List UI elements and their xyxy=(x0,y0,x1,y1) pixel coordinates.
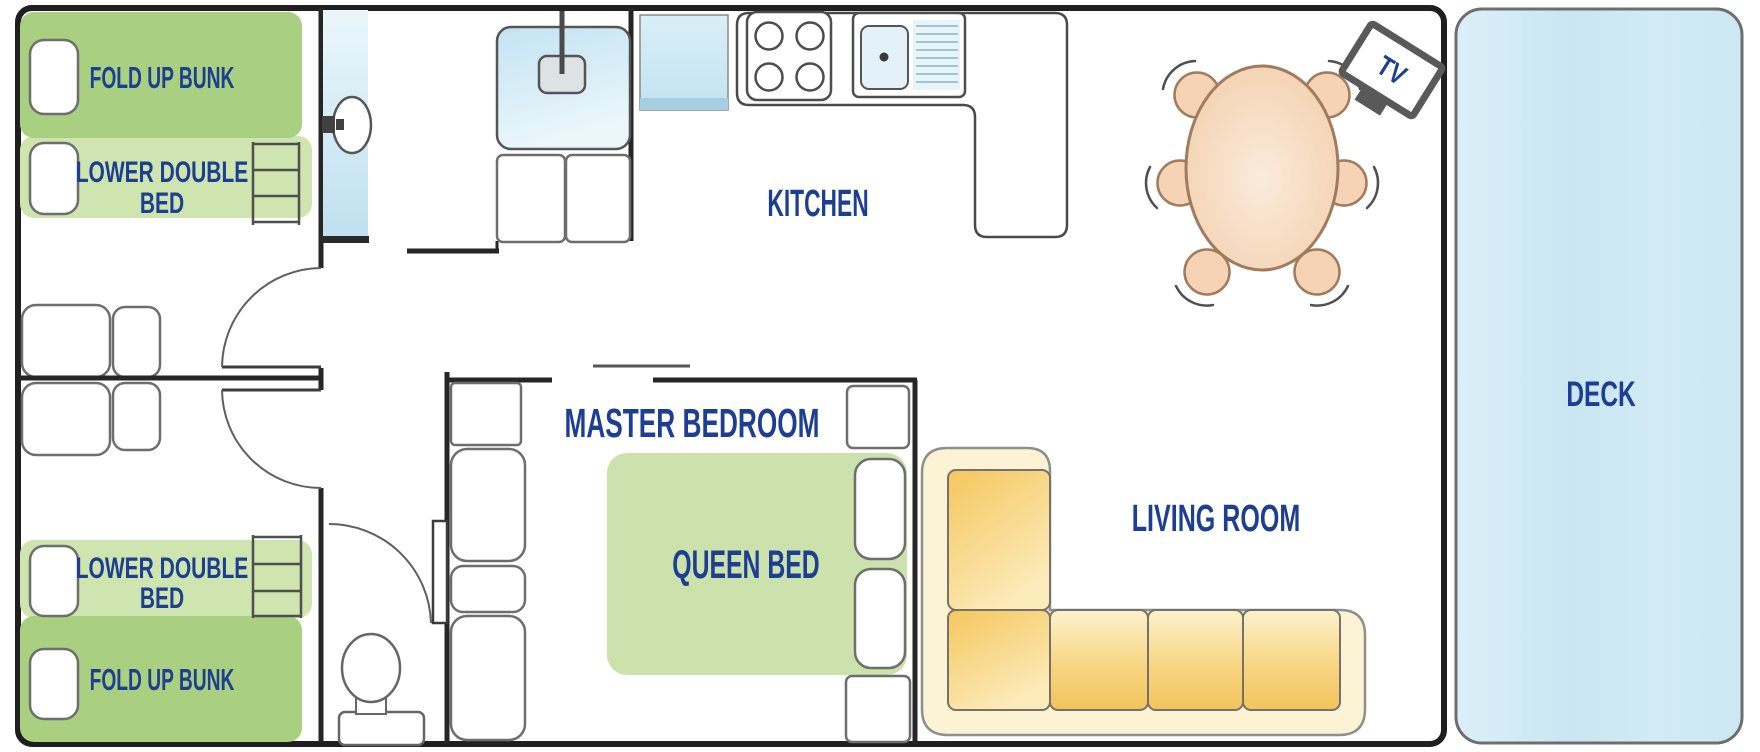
stove-icon xyxy=(747,12,831,100)
burner-circle xyxy=(756,64,783,91)
fridge-base xyxy=(640,98,728,110)
lower-double-bed-label-line2: BED xyxy=(140,188,184,220)
sink-drain xyxy=(880,53,889,62)
queen-bed-label: QUEEN BED xyxy=(672,543,819,587)
sofa-cushion xyxy=(1050,610,1148,710)
wall-jog xyxy=(433,521,447,623)
kitchen-label: KITCHEN xyxy=(767,182,868,224)
pillow-icon xyxy=(30,649,78,719)
drainboard xyxy=(913,20,960,90)
sofa-cushion xyxy=(948,610,1050,710)
wardrobe xyxy=(451,566,525,612)
bedside-cabinet xyxy=(847,386,909,448)
bunk-room-bottom: LOWER DOUBLE BED FOLD UP BUNK xyxy=(20,535,312,742)
cabin-seat xyxy=(22,383,110,455)
fridge-icon xyxy=(640,15,728,110)
fold-up-bunk-label: FOLD UP BUNK xyxy=(90,664,235,698)
basin-tap-icon xyxy=(336,119,344,130)
sofa-cushion xyxy=(948,470,1050,610)
vanity-cabinet xyxy=(497,155,565,242)
wardrobe xyxy=(451,616,525,740)
pillow-icon xyxy=(30,40,78,114)
vanity-cabinet xyxy=(566,155,630,242)
bedside-cabinet xyxy=(846,676,910,742)
pillow-icon xyxy=(30,546,78,616)
cabin-seat xyxy=(22,305,110,377)
living-room-label: LIVING ROOM xyxy=(1132,497,1301,539)
kitchen-sink-icon xyxy=(853,13,965,97)
cabin-seat xyxy=(113,307,160,377)
cabin-seat xyxy=(113,383,160,450)
deck-label: DECK xyxy=(1566,376,1636,414)
wardrobe xyxy=(451,449,525,561)
burner-circle xyxy=(797,64,824,91)
wall-cap xyxy=(321,236,369,243)
basin-tap-icon xyxy=(322,116,335,133)
bunk-room-top: FOLD UP BUNK LOWER DOUBLE BED xyxy=(20,12,312,225)
lower-double-bed-label-line1: LOWER DOUBLE xyxy=(76,157,249,189)
sofa-cushion xyxy=(1243,610,1340,710)
sofa-cushion xyxy=(1148,610,1243,710)
burner-circle xyxy=(797,23,824,50)
dining-table-icon xyxy=(1186,66,1338,270)
burner-circle xyxy=(756,23,783,50)
pillow-icon xyxy=(30,143,78,214)
pillow-icon xyxy=(855,569,905,668)
deck-area: DECK xyxy=(1456,9,1742,743)
fold-up-bunk-label: FOLD UP BUNK xyxy=(90,62,235,96)
houseboat-floorplan: DECK FOLD UP BUNK LOWER DOUBLE BED xyxy=(0,0,1760,752)
master-bedroom-label: MASTER BEDROOM xyxy=(564,401,819,446)
pillow-icon xyxy=(855,459,905,559)
wardrobe xyxy=(451,383,521,445)
lower-double-bed-label-line2: BED xyxy=(140,583,184,615)
lower-double-bed-label-line1: LOWER DOUBLE xyxy=(76,553,249,585)
